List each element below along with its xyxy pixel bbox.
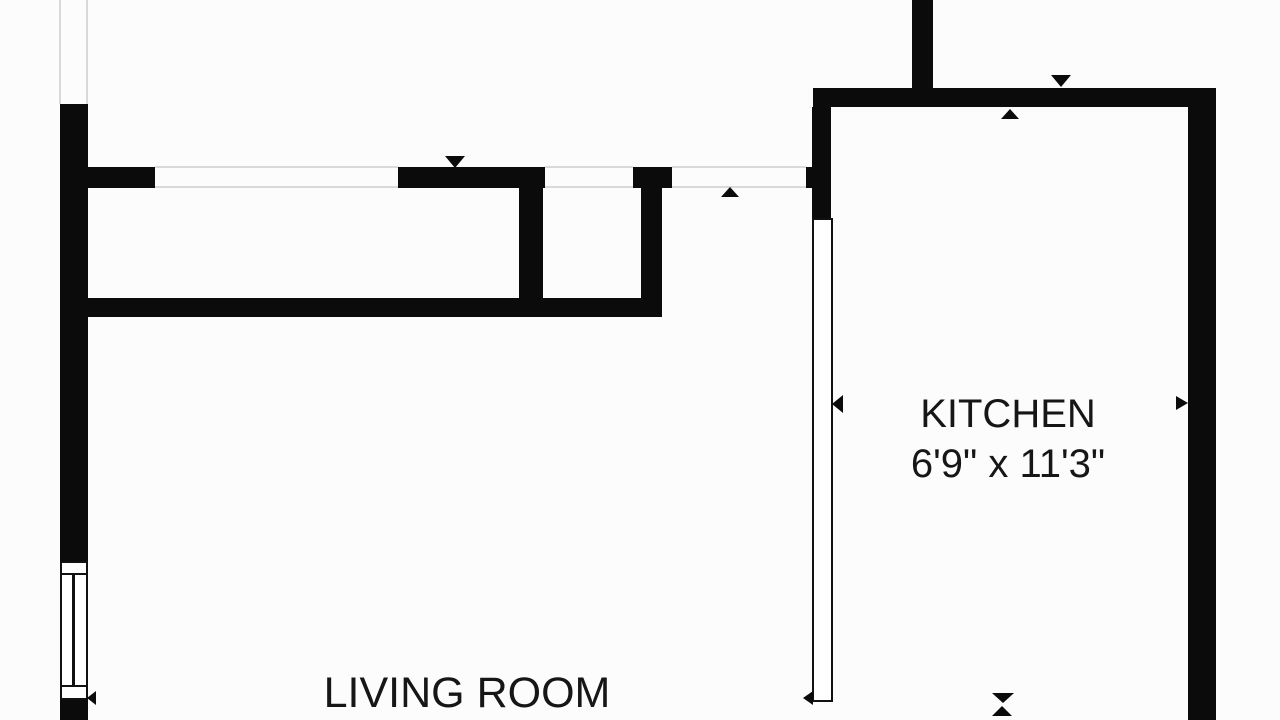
- arrow-left-door-bottom: [803, 691, 813, 705]
- kitchen-room-dimensions: 6'9" x 11'3": [833, 441, 1183, 488]
- left-wall-upper: [60, 104, 88, 561]
- window-symbol: [60, 561, 88, 700]
- arrow-left-window-bottom: [87, 691, 96, 705]
- window-center-line: [72, 575, 75, 685]
- opening-c-bottom-line: [672, 186, 806, 188]
- floorplan-canvas: KITCHEN 6'9" x 11'3" LIVING ROOM: [0, 0, 1280, 720]
- opening-b-top-line: [545, 166, 633, 168]
- entry-opening-line-right: [86, 0, 88, 104]
- opening-b-bottom-line: [545, 186, 633, 188]
- kitchen-door-panel: [812, 218, 833, 702]
- arrow-down-hall-opening: [445, 156, 465, 168]
- hall-wall-bottom: [85, 298, 660, 317]
- opening-a-top-line: [155, 166, 398, 168]
- arrow-up-hall-opening: [721, 187, 739, 197]
- living-room-label: LIVING ROOM: [312, 668, 622, 719]
- opening-c-top-line: [672, 166, 806, 168]
- arrow-up-kitchen-bottom: [992, 706, 1012, 716]
- closet-wall-right-top: [633, 167, 672, 188]
- arrow-up-kitchen-top: [1001, 109, 1019, 119]
- hall-wall-a: [398, 167, 545, 188]
- left-wall-lower: [60, 700, 88, 720]
- opening-a-bottom-line: [155, 186, 398, 188]
- top-wall-stub: [912, 0, 933, 88]
- closet-wall-right: [641, 188, 662, 317]
- kitchen-wall-top: [813, 88, 1216, 107]
- right-wall: [1188, 88, 1216, 720]
- kitchen-door-jamb: [806, 167, 812, 188]
- hall-stub-left: [88, 167, 155, 188]
- arrow-down-kitchen-bottom: [992, 693, 1014, 703]
- kitchen-room-label: KITCHEN: [833, 391, 1183, 438]
- arrow-down-kitchen-top: [1051, 75, 1071, 87]
- window-sill-line-bottom: [62, 685, 86, 687]
- kitchen-wall-left-upper: [812, 107, 831, 218]
- closet-wall-left: [519, 188, 543, 298]
- entry-opening-line-left: [59, 0, 61, 104]
